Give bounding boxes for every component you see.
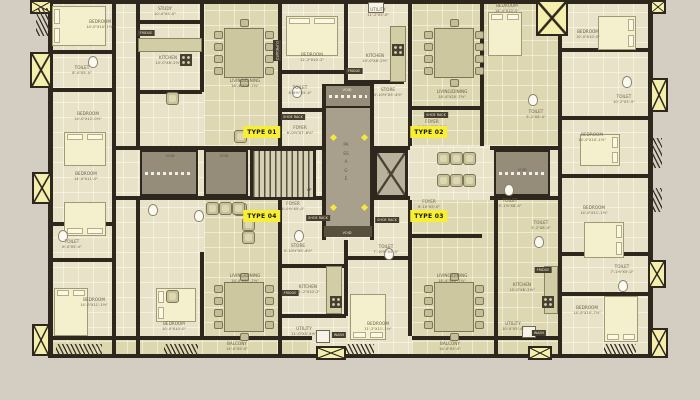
room-label: KITCHEN10'-0"X8'-2½": [155, 56, 180, 66]
room-name: TOILET: [503, 198, 518, 203]
room-label: BEDROOM10'-0"X10'-0": [162, 322, 186, 332]
room-label: STORE4'-10½"X5'-4½": [374, 88, 403, 98]
service-tag: FRIDGE: [346, 68, 363, 74]
void-label: VOID: [165, 154, 174, 158]
room-dimensions: 10'-0"X5'-4": [502, 327, 524, 332]
window-x-icon: [650, 328, 668, 358]
room-name: STORE: [381, 87, 395, 92]
room-label: BALCONY14'-0"X5'-0": [439, 342, 461, 352]
room-dimensions: 18'-4"X20'-7½": [437, 95, 468, 100]
room-dimensions: 10'-0"X8'-2½": [362, 59, 387, 64]
pillow: [73, 290, 85, 296]
room-label: BEDROOM14'-0"X10'-0": [495, 4, 519, 14]
room-dimensions: 8'-0"X5'-0": [72, 71, 91, 76]
room-dimensions: 10'-0"X8'-2½": [509, 288, 534, 293]
window-hatch-icon: [164, 344, 198, 355]
room-dimensions: 14'-0"X5'-0": [439, 347, 461, 352]
room-name: KITCHEN: [366, 53, 384, 58]
unit-type-label: TYPE 04: [243, 210, 280, 222]
room-label: UTILITY10'-0"X5'-4": [502, 322, 524, 332]
wall: [278, 200, 282, 354]
room-name: TOILET: [379, 244, 394, 249]
dining-table: [434, 28, 474, 78]
toilet-wc-icon: [148, 204, 158, 216]
room-name: BALCONY: [440, 341, 460, 346]
sofa-seat: [450, 152, 463, 165]
chair: [214, 309, 223, 317]
sofa-seat: [463, 174, 476, 187]
chair: [214, 321, 223, 329]
chair: [450, 79, 459, 87]
service-tag: CUPBOARD: [273, 40, 281, 61]
pillow: [616, 225, 622, 238]
chair: [424, 285, 433, 293]
room-dimensions: 11'-2"X5'-0": [367, 13, 389, 18]
wall: [112, 4, 116, 354]
chair: [475, 67, 484, 75]
window-x-icon: [650, 78, 668, 112]
room-name: UTILITY: [296, 326, 312, 331]
lift-label: LIFT: [387, 171, 394, 175]
room-dimensions: 11'-0"X5'-4½": [291, 332, 316, 337]
room-dimensions: 14'-0"X10'-1½": [578, 138, 606, 143]
room-dimensions: 11'-2"X10'-2": [296, 290, 320, 295]
room-name: LIVING/DINING: [230, 273, 261, 278]
toilet-wc-icon: [618, 280, 628, 292]
pillow: [158, 307, 164, 319]
room-dimensions: 8'-6½"X5'-4": [289, 91, 312, 96]
sofa-seat: [242, 231, 255, 244]
room-label: LIVING/DINING18'-4"X20'-7½": [437, 90, 468, 100]
pillow: [54, 9, 60, 24]
room-name: KITCHEN: [159, 55, 177, 60]
room-label: KITCHEN10'-0"X8'-2½": [509, 283, 534, 293]
window-x-icon: [32, 324, 50, 356]
pillow: [289, 18, 310, 24]
wall: [348, 256, 408, 260]
room-label: BEDROOM14'-0"X10'-1½": [86, 20, 114, 30]
pillow: [87, 228, 103, 234]
pillow: [67, 228, 83, 234]
service-tag: FRIDGE: [282, 290, 299, 296]
wall: [52, 88, 114, 92]
room-label: STUDY10'-0"X5'-0": [154, 7, 176, 17]
stove-icon: [180, 54, 192, 66]
service-tag: SHOE RACK: [375, 217, 399, 223]
chair: [214, 55, 223, 63]
stove-icon: [542, 296, 554, 308]
pillow: [87, 134, 103, 140]
sofa-seat: [450, 174, 463, 187]
pillow: [607, 334, 619, 340]
room-label: BEDROOM14'-0"X11'-1½": [80, 298, 108, 308]
room-dimensions: 4'-10½"X5'-4½": [284, 249, 313, 254]
service-tag: FRIDGE: [535, 267, 552, 273]
wall: [136, 4, 140, 146]
chair: [214, 297, 223, 305]
chair: [240, 333, 249, 341]
chair: [475, 309, 484, 317]
window-x-icon: [648, 260, 666, 288]
chair: [424, 309, 433, 317]
room-label: BEDROOM14'-0"X12'-0½": [74, 112, 102, 122]
wall: [200, 252, 204, 336]
room-label: LIVING/DINING18'-4"X20'-7½": [230, 274, 261, 284]
room-name: BEDROOM: [583, 205, 605, 210]
room-label: TOILET5'-1½"X8'-0": [499, 199, 522, 209]
service-tag: WASH: [332, 332, 346, 338]
room-dimensions: 14'-0"X11'-1½": [80, 303, 108, 308]
chair: [265, 31, 274, 39]
room-label: FOYER6'-10"X5'-0": [418, 200, 440, 210]
pillow: [507, 14, 519, 20]
room-name: LIVING/DINING: [437, 89, 468, 94]
room-name: BEDROOM: [89, 19, 111, 24]
wall: [52, 50, 114, 54]
chair: [214, 43, 223, 51]
room-label: LIVING/DINING18'-4"X20'-7½": [230, 79, 261, 89]
toilet-wc-icon: [194, 210, 204, 222]
room-name: KITCHEN: [299, 284, 317, 289]
dining-table: [224, 282, 264, 332]
chair: [475, 321, 484, 329]
room-name: BEDROOM: [496, 3, 518, 8]
room-label: TOILET8'-0"X5'-0": [72, 66, 91, 76]
kitchen-counter: [138, 38, 202, 52]
sofa-seat: [437, 152, 450, 165]
sofa-seat: [219, 202, 232, 215]
room-name: UTILITY: [370, 7, 386, 12]
window-hatch-icon: [604, 344, 636, 355]
pillow: [628, 19, 634, 31]
washer-icon: [316, 330, 330, 343]
chair: [475, 297, 484, 305]
wall: [412, 106, 482, 110]
room-label: BEDROOM14'-0"X11'-0": [74, 172, 98, 182]
room-name: UTILITY: [505, 321, 521, 326]
room-name: TOILET: [75, 65, 90, 70]
wall: [280, 70, 346, 74]
room-name: BEDROOM: [83, 297, 105, 302]
toilet-wc-icon: [528, 94, 538, 106]
window-x-icon: [30, 52, 52, 88]
window-hatch-icon: [56, 344, 102, 355]
service-tag: WASH: [532, 330, 546, 336]
room-dimensions: 4'-10½"X5'-4½": [374, 93, 403, 98]
room-name: BEDROOM: [367, 321, 389, 326]
pillow: [57, 290, 69, 296]
chair: [424, 43, 433, 51]
room-dimensions: 7'-10½"X5'-0": [373, 250, 398, 255]
room-label: KITCHEN10'-0"X8'-2½": [362, 54, 387, 64]
room-dimensions: 14'-0"X11'-0": [74, 177, 98, 182]
room-label: BEDROOM11'-2"X11'-1½": [364, 322, 392, 332]
floor-plan: PASSAGE LIFT UP BEDROOM14'-0"X10'-1½"TOI…: [0, 0, 700, 400]
window-x-icon: [32, 172, 52, 204]
chair: [475, 285, 484, 293]
toilet-wc-icon: [534, 236, 544, 248]
room-label: BALCONY14'-0"X5'-0": [226, 342, 248, 352]
room-dimensions: 14'-0"X11'-1½": [580, 211, 608, 216]
wall: [50, 336, 312, 340]
wall: [136, 200, 140, 354]
chair: [450, 333, 459, 341]
chair: [424, 67, 433, 75]
chair: [265, 67, 274, 75]
room-dimensions: 18'-4"X20'-7½": [230, 84, 261, 89]
unit-type-label: TYPE 02: [410, 126, 447, 138]
room-name: TOILET: [293, 85, 308, 90]
chair: [424, 31, 433, 39]
room-label: TOILET7'-10½"X5'-0": [373, 245, 398, 255]
void-hatch: [329, 95, 367, 98]
chair: [450, 19, 459, 27]
service-tag: SHOE RACK: [424, 112, 448, 118]
room-label: TOILET7'-1½"X5'-0": [611, 265, 634, 275]
pillow: [491, 14, 503, 20]
window-hatch-icon: [652, 188, 662, 212]
pillow: [353, 332, 366, 338]
void-label: VOID: [342, 231, 351, 235]
wall: [52, 258, 114, 262]
sofa-seat: [463, 152, 476, 165]
room-name: FOYER: [425, 119, 439, 124]
wall: [412, 336, 560, 340]
chair: [265, 285, 274, 293]
void-label: VOID: [342, 88, 351, 92]
window-hatch-icon: [652, 138, 662, 168]
room-label: BEDROOM11'-2"X10'-2": [300, 53, 324, 63]
unit-type-label: TYPE 03: [410, 210, 447, 222]
pillow: [158, 291, 164, 303]
chair: [265, 297, 274, 305]
room-name: BEDROOM: [301, 52, 323, 57]
wall: [344, 240, 348, 316]
sofa-seat: [166, 290, 179, 303]
room-name: TOILET: [615, 264, 630, 269]
room-dimensions: 10'-2"X5'-0": [613, 100, 635, 105]
room-label: TOILET10'-2"X5'-0": [613, 95, 635, 105]
room-label: TOILET5'-2"X8'-0": [526, 110, 545, 120]
chair: [240, 19, 249, 27]
room-dimensions: 7'-1½"X5'-0": [611, 270, 634, 275]
service-tag: SHOE RACK: [306, 215, 330, 221]
room-dimensions: 10'-0"X5'-0": [154, 12, 176, 17]
room-label: FOYER6'-0½"X5'-0": [282, 202, 305, 212]
room-name: BEDROOM: [577, 29, 599, 34]
pillow: [616, 242, 622, 255]
room-label: BEDROOM14'-0"X11'-1½": [580, 206, 608, 216]
wall: [408, 4, 412, 146]
pillow: [623, 334, 635, 340]
room-label: BEDROOM10'-0"X10'-0": [576, 30, 600, 40]
room-dimensions: 11'-2"X11'-1½": [364, 327, 392, 332]
room-name: BEDROOM: [75, 171, 97, 176]
pillow: [67, 134, 83, 140]
room-label: TOILET5'-2"X8'-0": [531, 221, 550, 231]
room-name: LIVING/DINING: [230, 78, 261, 83]
staircase-icon: [250, 148, 316, 200]
void-hatch: [145, 172, 193, 175]
toilet-wc-icon: [622, 76, 632, 88]
room-label: TOILET8'-6½"X5'-4": [289, 86, 312, 96]
chair: [424, 55, 433, 63]
room-dimensions: 14'-0"X5'-0": [226, 347, 248, 352]
passage-label: PASSAGE: [343, 142, 349, 185]
void-label: VOID: [219, 154, 228, 158]
room-name: FOYER: [293, 125, 307, 130]
room-dimensions: 14'-0"X10'-0": [495, 9, 519, 14]
room-label: STORE4'-10½"X5'-4½": [284, 244, 313, 254]
room-dimensions: 5'-1½"X8'-0": [499, 204, 522, 209]
chair: [214, 285, 223, 293]
void-hatch: [499, 172, 545, 175]
sofa-seat: [206, 202, 219, 215]
toilet-wc-icon: [294, 230, 304, 242]
window-x-icon: [536, 0, 568, 36]
window-x-icon: [316, 346, 346, 360]
room-dimensions: 14'-0"X12'-0½": [74, 117, 102, 122]
room-dimensions: 6'-10"X5'-0": [418, 205, 440, 210]
room-dimensions: 10'-0"X10'-0": [576, 35, 600, 40]
wall: [278, 4, 282, 146]
chair: [475, 55, 484, 63]
room-name: FOYER: [286, 201, 300, 206]
room-name: BEDROOM: [576, 305, 598, 310]
room-dimensions: 8'-0"X5'-0": [62, 245, 81, 250]
window-hatch-icon: [36, 8, 49, 36]
pillow: [54, 28, 60, 43]
wall: [136, 20, 202, 24]
room-label: BEDROOM14'-0"X10'-7½": [573, 306, 601, 316]
room-label: BEDROOM14'-0"X10'-1½": [578, 133, 606, 143]
room-dimensions: 14'-0"X10'-7½": [573, 311, 601, 316]
pillow: [612, 137, 618, 148]
room-name: BEDROOM: [77, 111, 99, 116]
chair: [475, 31, 484, 39]
toilet-wc-icon: [504, 184, 514, 196]
wall: [558, 4, 562, 354]
wall: [412, 234, 482, 238]
chair: [214, 31, 223, 39]
room-dimensions: 10'-0"X10'-0": [162, 327, 186, 332]
room-label: LIVING/DINING18'-4"X20'-7½": [437, 274, 468, 284]
unit-type-label: TYPE 01: [243, 126, 280, 138]
chair: [214, 67, 223, 75]
room-label: FOYER6'-0½"X7'-6½": [287, 126, 313, 136]
room-dimensions: 5'-2"X8'-0": [526, 115, 545, 120]
pillow: [314, 18, 335, 24]
service-tag: FRIDGE: [138, 30, 155, 36]
room-name: LIVING/DINING: [437, 273, 468, 278]
wall: [494, 200, 498, 354]
sofa-seat: [437, 174, 450, 187]
chair: [424, 297, 433, 305]
room-dimensions: 5'-2"X8'-0": [531, 226, 550, 231]
room-dimensions: 10'-0"X8'-2½": [155, 61, 180, 66]
stairs-up-label: UP: [307, 188, 312, 192]
chair: [475, 43, 484, 51]
room-name: BEDROOM: [581, 132, 603, 137]
pillow: [370, 332, 383, 338]
room-name: FOYER: [422, 199, 436, 204]
room-dimensions: 6'-0½"X7'-6½": [287, 131, 313, 136]
room-dimensions: 6'-0½"X5'-0": [282, 207, 305, 212]
room-label: KITCHEN11'-2"X10'-2": [296, 285, 320, 295]
window-x-icon: [650, 0, 666, 14]
room-dimensions: 14'-0"X10'-1½": [86, 25, 114, 30]
room-name: STORE: [291, 243, 305, 248]
window-x-icon: [528, 346, 552, 360]
stove-icon: [330, 296, 342, 308]
room-label: UTILITY11'-0"X5'-4½": [291, 327, 316, 337]
service-tag: SHOE RACK: [281, 114, 305, 120]
room-name: BEDROOM: [163, 321, 185, 326]
pillow: [628, 35, 634, 47]
chair: [265, 321, 274, 329]
dining-table: [224, 28, 264, 78]
room-name: BALCONY: [227, 341, 247, 346]
window-hatch-icon: [346, 344, 374, 355]
wall: [562, 174, 650, 178]
room-name: STUDY: [158, 6, 172, 11]
room-name: TOILET: [529, 109, 544, 114]
sofa-seat: [166, 92, 179, 105]
wall: [562, 116, 650, 120]
room-dimensions: 11'-2"X10'-2": [300, 58, 324, 63]
stove-icon: [392, 44, 404, 56]
room-dimensions: 18'-4"X20'-7½": [230, 279, 261, 284]
room-name: KITCHEN: [513, 282, 531, 287]
wall: [648, 0, 653, 358]
pillow: [612, 152, 618, 163]
wall: [480, 4, 484, 146]
room-label: TOILET8'-0"X5'-0": [62, 240, 81, 250]
room-label: UTILITY11'-2"X5'-0": [367, 8, 389, 18]
dining-table: [434, 282, 474, 332]
wall: [280, 314, 346, 318]
room-name: TOILET: [65, 239, 80, 244]
chair: [424, 321, 433, 329]
room-name: TOILET: [534, 220, 549, 225]
room-name: TOILET: [617, 94, 632, 99]
void-label: VOID: [517, 168, 526, 172]
room-dimensions: 18'-4"X20'-7½": [437, 279, 468, 284]
chair: [265, 309, 274, 317]
